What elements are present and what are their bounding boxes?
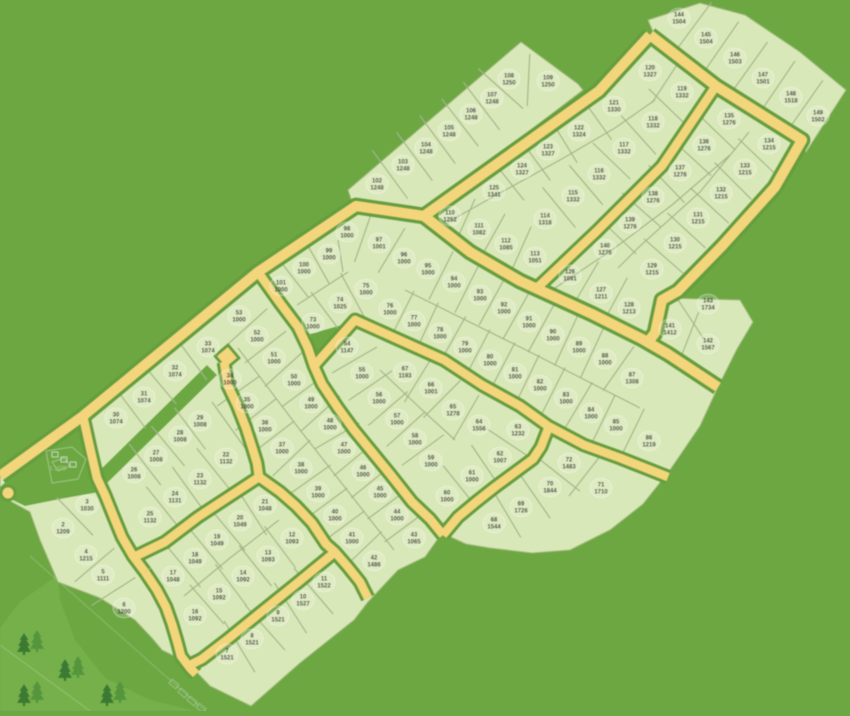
svg-text:28: 28 [177,431,184,437]
svg-text:122: 122 [574,126,585,132]
svg-text:1000: 1000 [337,450,351,456]
svg-text:15: 15 [216,589,223,595]
svg-text:1844: 1844 [543,489,557,495]
svg-text:1412: 1412 [663,331,677,337]
svg-text:118: 118 [648,117,658,123]
svg-text:1330: 1330 [607,108,621,114]
svg-text:1000: 1000 [522,324,536,330]
svg-text:1132: 1132 [193,481,207,487]
svg-text:11: 11 [321,577,328,583]
svg-text:55: 55 [359,368,366,374]
svg-text:1000: 1000 [609,427,623,433]
svg-text:26: 26 [131,468,138,474]
svg-text:1504: 1504 [672,20,686,26]
svg-text:147: 147 [758,73,769,79]
svg-text:66: 66 [428,383,435,389]
svg-text:142: 142 [703,339,714,345]
svg-text:1332: 1332 [646,124,660,130]
svg-text:76: 76 [387,304,394,310]
svg-text:72: 72 [566,458,573,464]
svg-text:1074: 1074 [109,420,123,426]
svg-text:1049: 1049 [233,523,247,529]
svg-text:1000: 1000 [304,405,318,411]
svg-text:99: 99 [326,249,333,255]
svg-text:1000: 1000 [533,387,547,393]
svg-text:1215: 1215 [645,271,659,277]
svg-text:133: 133 [740,164,751,170]
svg-text:60: 60 [444,491,451,497]
svg-text:1092: 1092 [188,617,202,623]
svg-text:1085: 1085 [499,246,513,252]
svg-text:97: 97 [376,238,383,244]
svg-text:69: 69 [518,502,525,508]
svg-text:75: 75 [363,284,370,290]
svg-text:1000: 1000 [584,415,598,421]
svg-text:64: 64 [476,420,483,426]
svg-text:33: 33 [205,342,212,348]
svg-text:65: 65 [450,405,457,411]
svg-text:44: 44 [394,510,401,516]
svg-text:61: 61 [469,471,476,477]
svg-text:1219: 1219 [642,443,656,449]
svg-text:1215: 1215 [762,146,776,152]
svg-text:1726: 1726 [514,509,528,515]
svg-text:82: 82 [537,380,544,386]
svg-text:57: 57 [394,414,401,420]
svg-text:87: 87 [629,373,636,379]
svg-text:1000: 1000 [497,310,511,316]
svg-text:1276: 1276 [623,225,637,231]
svg-text:1248: 1248 [442,133,456,139]
svg-text:1000: 1000 [287,382,301,388]
svg-text:1000: 1000 [322,256,336,262]
svg-text:71: 71 [598,483,605,489]
svg-text:1000: 1000 [447,284,461,290]
svg-text:10: 10 [300,595,307,601]
svg-text:1308: 1308 [625,380,639,386]
svg-text:1093: 1093 [261,558,275,564]
svg-text:104: 104 [421,143,432,149]
svg-text:1000: 1000 [274,288,288,294]
svg-text:1008: 1008 [127,475,141,481]
svg-text:18: 18 [192,553,199,559]
svg-text:1000: 1000 [598,361,612,367]
svg-text:98: 98 [344,227,351,233]
svg-text:140: 140 [600,244,611,250]
svg-text:1093: 1093 [285,540,299,546]
svg-text:1051: 1051 [528,259,542,265]
svg-text:1276: 1276 [646,199,660,205]
svg-text:1000: 1000 [546,337,560,343]
svg-text:1209: 1209 [56,530,70,536]
svg-text:70: 70 [547,482,554,488]
svg-text:1000: 1000 [306,325,320,331]
svg-text:114: 114 [540,214,550,220]
svg-text:1250: 1250 [541,83,555,89]
svg-text:21: 21 [262,500,269,506]
svg-text:43: 43 [411,533,418,539]
svg-text:79: 79 [462,342,469,348]
svg-text:96: 96 [401,253,408,259]
svg-text:1332: 1332 [617,150,631,156]
svg-text:92: 92 [501,303,508,309]
svg-text:30: 30 [113,413,120,419]
svg-text:103: 103 [398,160,409,166]
svg-text:91: 91 [526,317,533,323]
svg-text:93: 93 [477,290,484,296]
svg-text:146: 146 [730,53,741,59]
svg-text:132: 132 [716,188,727,194]
svg-text:19: 19 [214,535,221,541]
svg-text:100: 100 [299,263,310,269]
svg-text:1092: 1092 [212,596,226,602]
svg-text:1030: 1030 [80,507,94,513]
svg-text:49: 49 [308,398,315,404]
svg-text:1521: 1521 [245,641,259,647]
svg-text:1065: 1065 [407,540,421,546]
svg-text:35: 35 [244,398,251,404]
svg-text:73: 73 [310,318,317,324]
svg-text:14: 14 [240,571,247,577]
svg-text:141: 141 [665,324,676,330]
svg-text:126: 126 [565,270,576,276]
svg-text:51: 51 [271,353,278,359]
svg-text:53: 53 [236,311,243,317]
svg-text:1000: 1000 [250,338,264,344]
svg-text:130: 130 [670,238,681,244]
svg-text:1008: 1008 [193,423,207,429]
svg-text:1341: 1341 [487,193,501,199]
svg-text:1332: 1332 [592,176,606,182]
svg-text:138: 138 [648,192,659,198]
svg-text:52: 52 [254,331,261,337]
svg-text:1521: 1521 [220,656,234,662]
svg-text:111: 111 [474,224,484,230]
svg-text:1000: 1000 [473,297,487,303]
svg-text:40: 40 [332,510,339,516]
svg-text:1276: 1276 [673,173,687,179]
svg-text:1000: 1000 [424,463,438,469]
svg-text:1502: 1502 [811,118,825,124]
svg-text:105: 105 [444,126,455,132]
svg-text:1 1025: 1 1025 [50,466,67,472]
svg-text:1111: 1111 [97,577,110,583]
svg-text:106: 106 [466,109,477,115]
svg-text:148: 148 [786,92,797,98]
svg-text:77: 77 [411,316,418,322]
svg-text:1193: 1193 [398,374,412,380]
svg-text:139: 139 [625,218,636,224]
svg-text:145: 145 [701,33,712,39]
svg-text:1008: 1008 [149,458,163,464]
svg-text:1000: 1000 [267,360,281,366]
svg-text:115: 115 [568,191,578,197]
svg-text:1486: 1486 [367,563,381,569]
svg-text:1200: 1200 [117,610,131,616]
svg-text:131: 131 [693,213,704,219]
svg-text:1734: 1734 [701,306,715,312]
svg-text:1501: 1501 [756,80,770,86]
svg-text:1132: 1132 [143,519,157,525]
svg-text:1215: 1215 [79,557,93,563]
svg-text:94: 94 [451,277,458,283]
svg-text:1048: 1048 [258,507,272,513]
svg-text:1332: 1332 [675,94,689,100]
svg-text:32: 32 [172,366,179,372]
svg-text:1332: 1332 [566,198,580,204]
svg-text:1000: 1000 [297,270,311,276]
svg-text:1000: 1000 [372,400,386,406]
svg-text:1000: 1000 [328,517,342,523]
svg-text:68: 68 [491,518,498,524]
svg-text:125: 125 [489,186,500,192]
svg-text:34: 34 [227,374,234,380]
svg-text:1248: 1248 [485,100,499,106]
svg-text:45: 45 [377,487,384,493]
svg-text:56: 56 [376,393,383,399]
svg-text:137: 137 [675,166,686,172]
svg-text:29: 29 [197,416,204,422]
svg-text:1504: 1504 [699,40,713,46]
svg-text:1025: 1025 [333,305,347,311]
svg-text:1000: 1000 [356,473,370,479]
svg-text:1000: 1000 [421,271,435,277]
svg-text:108: 108 [504,74,515,80]
svg-text:1092: 1092 [236,578,250,584]
svg-text:47: 47 [341,443,348,449]
svg-text:1215: 1215 [691,220,705,226]
svg-text:1048: 1048 [166,578,180,584]
svg-text:20: 20 [237,516,244,522]
svg-text:1211: 1211 [594,295,608,301]
svg-text:117: 117 [619,143,629,149]
svg-text:24: 24 [172,492,179,498]
svg-text:1000: 1000 [240,405,254,411]
svg-text:1000: 1000 [311,494,325,500]
svg-text:1248: 1248 [396,167,410,173]
svg-text:1000: 1000 [223,381,237,387]
svg-text:121: 121 [609,101,620,107]
svg-text:86: 86 [646,436,653,442]
svg-text:83: 83 [563,393,570,399]
svg-text:1000: 1000 [397,260,411,266]
svg-text:38: 38 [298,463,305,469]
svg-text:1074: 1074 [137,399,151,405]
svg-text:120: 120 [645,66,656,72]
svg-text:1518: 1518 [784,99,798,105]
svg-text:119: 119 [677,87,687,93]
svg-text:101: 101 [276,281,287,287]
svg-text:1000: 1000 [407,323,421,329]
svg-text:1215: 1215 [738,171,752,177]
svg-text:1215: 1215 [714,195,728,201]
svg-text:58: 58 [412,434,419,440]
svg-text:1248: 1248 [419,150,433,156]
svg-text:41: 41 [349,533,356,539]
svg-text:37: 37 [279,443,286,449]
svg-text:90: 90 [550,330,557,336]
svg-text:1147: 1147 [340,349,354,355]
svg-text:1000: 1000 [440,498,454,504]
svg-text:1132: 1132 [219,460,233,466]
svg-text:1082: 1082 [472,231,486,237]
svg-text:1521: 1521 [271,618,285,624]
svg-text:1000: 1000 [508,375,522,381]
svg-text:127: 127 [596,288,607,294]
svg-text:1248: 1248 [370,186,384,192]
svg-text:1000: 1000 [390,517,404,523]
svg-text:144: 144 [674,13,685,19]
svg-text:1544: 1544 [487,525,501,531]
svg-text:1000: 1000 [559,400,573,406]
svg-text:31: 31 [141,392,148,398]
svg-text:1000: 1000 [294,470,308,476]
svg-text:74: 74 [337,298,344,304]
svg-text:116: 116 [594,169,604,175]
svg-text:81: 81 [512,368,519,374]
svg-text:1000: 1000 [275,450,289,456]
svg-text:1001: 1001 [372,245,386,251]
svg-text:1483: 1483 [562,465,576,471]
svg-text:1000: 1000 [458,349,472,355]
svg-text:1049: 1049 [210,542,224,548]
svg-text:46: 46 [360,466,367,472]
svg-text:1000: 1000 [383,311,397,317]
svg-text:1324: 1324 [572,133,586,139]
svg-text:59: 59 [428,456,435,462]
svg-text:22: 22 [223,453,230,459]
svg-text:12: 12 [289,533,296,539]
svg-text:54: 54 [344,342,351,348]
svg-text:128: 128 [624,303,635,309]
svg-text:1000: 1000 [408,441,422,447]
svg-text:1527: 1527 [296,602,310,608]
svg-text:27: 27 [153,451,160,457]
svg-text:1327: 1327 [541,152,555,158]
svg-text:1000: 1000 [465,478,479,484]
svg-text:1318: 1318 [538,221,552,227]
svg-text:124: 124 [517,164,528,170]
svg-text:1000: 1000 [359,291,373,297]
svg-text:1000: 1000 [355,375,369,381]
svg-text:1567: 1567 [701,346,715,352]
svg-text:1276: 1276 [697,147,711,153]
svg-text:107: 107 [487,93,498,99]
svg-text:1327: 1327 [515,171,529,177]
svg-text:88: 88 [602,354,609,360]
svg-text:1131: 1131 [168,499,182,505]
svg-text:1000: 1000 [572,349,586,355]
svg-text:67: 67 [402,367,409,373]
svg-text:1252: 1252 [443,218,457,224]
svg-text:1001: 1001 [424,390,438,396]
svg-text:1215: 1215 [668,245,682,251]
svg-text:85: 85 [613,420,620,426]
svg-text:23: 23 [197,474,204,480]
svg-text:1074: 1074 [201,349,215,355]
svg-text:129: 129 [647,264,658,270]
svg-text:123: 123 [543,145,554,151]
svg-text:1276: 1276 [722,121,736,127]
svg-text:36: 36 [262,421,269,427]
svg-text:1007: 1007 [493,459,507,465]
svg-text:1250: 1250 [502,81,516,87]
svg-text:1000: 1000 [483,362,497,368]
svg-text:84: 84 [588,408,595,414]
svg-text:1000: 1000 [258,428,272,434]
svg-text:48: 48 [327,419,334,425]
svg-text:1000: 1000 [390,421,404,427]
svg-text:1248: 1248 [464,116,478,122]
svg-text:1074: 1074 [168,373,182,379]
svg-text:1213: 1213 [622,310,636,316]
svg-text:89: 89 [576,342,583,348]
svg-text:1556: 1556 [472,427,486,433]
svg-text:80: 80 [487,355,494,361]
svg-text:1327: 1327 [643,73,657,79]
svg-text:1000: 1000 [433,335,447,341]
svg-text:16: 16 [192,610,199,616]
svg-text:1000: 1000 [340,234,354,240]
svg-text:1000: 1000 [345,540,359,546]
svg-text:25: 25 [147,512,154,518]
svg-text:1503: 1503 [728,60,742,66]
svg-text:13: 13 [265,551,272,557]
svg-text:1091: 1091 [563,277,577,283]
svg-text:1232: 1232 [511,432,525,438]
svg-text:62: 62 [497,452,504,458]
svg-text:1710: 1710 [594,490,608,496]
svg-text:42: 42 [371,556,378,562]
svg-text:17: 17 [170,571,177,577]
svg-text:149: 149 [813,111,824,117]
svg-text:1000: 1000 [323,426,337,432]
svg-text:112: 112 [501,239,511,245]
svg-text:143: 143 [703,299,714,305]
svg-text:1522: 1522 [317,584,331,590]
svg-text:1000: 1000 [373,494,387,500]
svg-text:39: 39 [315,487,322,493]
svg-text:1049: 1049 [188,560,202,566]
svg-text:1000: 1000 [232,318,246,324]
svg-text:102: 102 [372,179,383,185]
svg-text:136: 136 [699,140,710,146]
svg-text:135: 135 [724,114,735,120]
svg-text:110: 110 [445,211,455,217]
svg-text:109: 109 [543,76,554,82]
svg-text:95: 95 [425,264,432,270]
svg-text:63: 63 [515,425,522,431]
svg-text:78: 78 [437,328,444,334]
svg-text:1278: 1278 [446,412,460,418]
svg-text:1275: 1275 [598,251,612,257]
svg-text:134: 134 [764,139,775,145]
svg-text:50: 50 [291,375,298,381]
svg-text:1008: 1008 [173,438,187,444]
svg-text:113: 113 [530,252,540,258]
